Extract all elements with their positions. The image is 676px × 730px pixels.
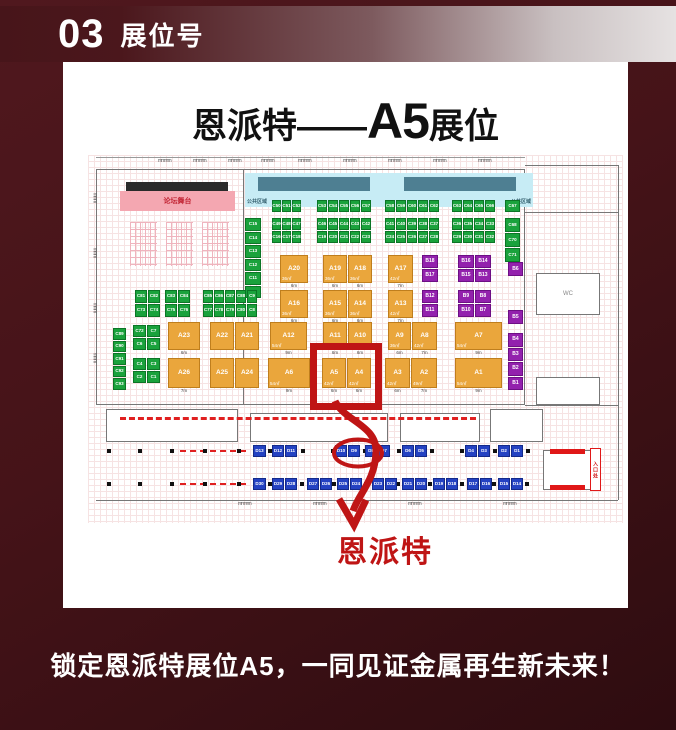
booth-C49: C49 bbox=[272, 218, 281, 230]
wall-post-marker bbox=[492, 482, 496, 486]
booth-C14: C14 bbox=[245, 232, 261, 245]
wall-post-marker bbox=[107, 482, 111, 486]
booth-B18: B18 bbox=[422, 255, 438, 268]
booth-C41: C41 bbox=[385, 218, 395, 230]
booth-C74: C74 bbox=[148, 304, 160, 317]
booth-D19: D19 bbox=[433, 478, 445, 490]
booth-C36: C36 bbox=[452, 218, 462, 230]
booth-C47: C47 bbox=[292, 218, 301, 230]
booth-C63: C63 bbox=[452, 200, 462, 212]
door-marks: mmmm bbox=[433, 159, 446, 164]
booth-B17: B17 bbox=[422, 269, 438, 282]
booth-D6: D6 bbox=[402, 445, 414, 457]
booth-C86: C86 bbox=[214, 290, 224, 303]
booth-C53: C53 bbox=[317, 200, 327, 212]
booth-C39: C39 bbox=[407, 218, 417, 230]
booth-D23: D23 bbox=[372, 478, 384, 490]
lower-wall-right bbox=[525, 405, 618, 406]
booth-D21: D21 bbox=[402, 478, 414, 490]
floorplan: WC 入口处 论坛舞台 公共区域 公共区域 bbox=[88, 155, 623, 523]
booth-C62: C62 bbox=[429, 200, 439, 212]
title-booth-number: A5 bbox=[367, 93, 429, 149]
booth-C2: C2 bbox=[133, 371, 146, 383]
booth-C91: C91 bbox=[113, 353, 126, 365]
booth-A21: A21 bbox=[235, 322, 259, 350]
door-marks: mmm bbox=[91, 353, 96, 363]
booth-C61: C61 bbox=[418, 200, 428, 212]
booth-D25: D25 bbox=[337, 478, 349, 490]
wall-post-marker bbox=[428, 482, 432, 486]
booth-C87: C87 bbox=[225, 290, 235, 303]
booth-C28: C28 bbox=[429, 231, 439, 243]
booth-B4: B4 bbox=[508, 333, 523, 347]
seating-block-center bbox=[166, 222, 193, 266]
booth-C12: C12 bbox=[245, 259, 261, 272]
booth-C83: C83 bbox=[165, 290, 177, 303]
wall-post-marker bbox=[170, 449, 174, 453]
booth-D22: D22 bbox=[385, 478, 397, 490]
entrance-bar-top bbox=[550, 449, 585, 454]
door-marks: mmmm bbox=[503, 502, 516, 507]
outer-wall-right bbox=[618, 165, 619, 500]
booth-C30: C30 bbox=[463, 231, 473, 243]
wall-post-marker bbox=[301, 449, 305, 453]
outer-wall-bottom bbox=[96, 500, 618, 501]
booth-C67: C67 bbox=[505, 200, 520, 212]
booth-B5: B5 bbox=[508, 310, 523, 324]
booth-C38: C38 bbox=[418, 218, 428, 230]
booth-A8: A842㎡7m bbox=[412, 322, 437, 350]
booth-B3: B3 bbox=[508, 348, 523, 362]
booth-D4: D4 bbox=[465, 445, 477, 457]
booth-D2: D2 bbox=[498, 445, 510, 457]
booth-D26: D26 bbox=[320, 478, 332, 490]
booth-B13: B13 bbox=[475, 269, 491, 282]
booth-C44: C44 bbox=[339, 218, 349, 230]
booth-D1: D1 bbox=[511, 445, 523, 457]
forum-stage: 论坛舞台 bbox=[120, 191, 235, 211]
booth-D7: D7 bbox=[378, 445, 390, 457]
booth-A17: A1742㎡7m bbox=[388, 255, 413, 283]
booth-C50: C50 bbox=[272, 200, 281, 212]
wall-post-marker bbox=[493, 449, 497, 453]
a5-highlight-box bbox=[310, 343, 382, 410]
booth-C88: C88 bbox=[236, 290, 246, 303]
card-title: 恩派特——A5展位 bbox=[63, 92, 628, 150]
wall-post-marker bbox=[203, 482, 207, 486]
red-dashed-line bbox=[120, 417, 476, 420]
wall-post-marker bbox=[237, 449, 241, 453]
booth-D20: D20 bbox=[415, 478, 427, 490]
booth-D14: D14 bbox=[511, 478, 523, 490]
booth-C43: C43 bbox=[350, 218, 360, 230]
booth-C52: C52 bbox=[292, 200, 301, 212]
annotation-company-label: 恩派特 bbox=[300, 527, 470, 571]
booth-C13: C13 bbox=[245, 245, 261, 258]
booth-C11: C11 bbox=[245, 272, 261, 285]
booth-D5: D5 bbox=[415, 445, 427, 457]
booth-C31: C31 bbox=[474, 231, 484, 243]
booth-C29: C29 bbox=[452, 231, 462, 243]
right-zone-wall-mid bbox=[525, 212, 618, 213]
booth-C78: C78 bbox=[214, 304, 224, 317]
wall-post-marker bbox=[237, 482, 241, 486]
booth-C34: C34 bbox=[474, 218, 484, 230]
entrance-label: 入口处 bbox=[592, 461, 599, 479]
wc-room: WC bbox=[536, 273, 600, 315]
booth-C92: C92 bbox=[113, 366, 126, 378]
wall-post-marker bbox=[526, 449, 530, 453]
booth-C40: C40 bbox=[396, 218, 406, 230]
bottom-caption: 锁定恩派特展位A5，一同见证金属再生新未来！ bbox=[0, 646, 676, 683]
booth-C48: C48 bbox=[282, 218, 291, 230]
booth-A3: A342㎡6m bbox=[385, 358, 410, 388]
lower-room-4 bbox=[490, 409, 543, 442]
booth-C79: C79 bbox=[225, 304, 235, 317]
booth-C85: C85 bbox=[203, 290, 213, 303]
booth-B9: B9 bbox=[458, 290, 474, 303]
booth-B7: B7 bbox=[475, 304, 491, 317]
booth-D9: D9 bbox=[348, 445, 360, 457]
booth-C6: C6 bbox=[133, 338, 146, 350]
header-band: 03 展位号 bbox=[0, 6, 676, 62]
booth-D17: D17 bbox=[467, 478, 479, 490]
door-marks: mmmm bbox=[478, 159, 491, 164]
booth-C35: C35 bbox=[463, 218, 473, 230]
booth-D18: D18 bbox=[446, 478, 458, 490]
booth-D8: D8 bbox=[365, 445, 377, 457]
booth-A7: A754㎡9m bbox=[455, 322, 502, 350]
booth-C82: C82 bbox=[148, 290, 160, 303]
booth-A6: A654㎡9m bbox=[268, 358, 310, 388]
booth-C58: C58 bbox=[385, 200, 395, 212]
door-marks: mmmm bbox=[298, 159, 311, 164]
booth-A22: A22 bbox=[210, 322, 234, 350]
booth-C57: C57 bbox=[361, 200, 371, 212]
booth-C54: C54 bbox=[328, 200, 338, 212]
booth-B11: B11 bbox=[422, 304, 438, 317]
public-area-bar-right bbox=[404, 177, 516, 191]
wall-post-marker bbox=[300, 482, 304, 486]
content-card: 恩派特——A5展位 WC 入口处 论坛舞台 bbox=[63, 62, 628, 608]
seating-block-left bbox=[130, 222, 157, 266]
booth-A24: A24 bbox=[235, 358, 259, 388]
arrow-head bbox=[339, 499, 366, 525]
booth-C37: C37 bbox=[429, 218, 439, 230]
section-number: 03 bbox=[58, 14, 105, 54]
wall-post-marker bbox=[332, 482, 336, 486]
booth-B15: B15 bbox=[458, 269, 474, 282]
booth-C75: C75 bbox=[165, 304, 177, 317]
wc-label: WC bbox=[563, 291, 573, 297]
booth-C4: C4 bbox=[133, 358, 146, 370]
title-suffix: 展位 bbox=[429, 107, 499, 146]
booth-C84: C84 bbox=[178, 290, 190, 303]
booth-C25: C25 bbox=[396, 231, 406, 243]
seating-block-right bbox=[202, 222, 229, 266]
booth-D30: D30 bbox=[253, 478, 266, 490]
door-marks: mmmm bbox=[228, 159, 241, 164]
booth-A14: A1436㎡6m bbox=[348, 290, 372, 318]
booth-C5: C5 bbox=[147, 338, 160, 350]
booth-C22: C22 bbox=[350, 231, 360, 243]
booth-A19: A1936㎡6m bbox=[323, 255, 347, 283]
booth-C60: C60 bbox=[407, 200, 417, 212]
booth-D11: D11 bbox=[285, 445, 297, 457]
booth-A9: A936㎡6m bbox=[388, 322, 411, 350]
booth-C1: C1 bbox=[147, 371, 160, 383]
entrance-bar-bottom bbox=[550, 485, 585, 490]
door-marks: mmm bbox=[91, 248, 96, 258]
booth-C90: C90 bbox=[113, 341, 126, 353]
wall-post-marker bbox=[170, 482, 174, 486]
booth-A20: A2036㎡6m bbox=[280, 255, 308, 283]
booth-B12: B12 bbox=[422, 290, 438, 303]
booth-C15: C15 bbox=[245, 218, 261, 231]
booth-C3: C3 bbox=[147, 358, 160, 370]
right-room-2 bbox=[536, 377, 600, 405]
wall-post-marker bbox=[364, 482, 368, 486]
booth-C80: C80 bbox=[236, 304, 246, 317]
booth-D15: D15 bbox=[498, 478, 510, 490]
booth-C9: C9 bbox=[247, 290, 257, 303]
booth-C33: C33 bbox=[485, 218, 495, 230]
booth-A15: A1536㎡6m bbox=[323, 290, 347, 318]
booth-B14: B14 bbox=[475, 255, 491, 268]
booth-C46: C46 bbox=[317, 218, 327, 230]
booth-B1: B1 bbox=[508, 377, 523, 391]
stage-label: 论坛舞台 bbox=[164, 196, 192, 206]
door-marks: mmmm bbox=[193, 159, 206, 164]
booth-B8: B8 bbox=[475, 290, 491, 303]
booth-C73: C73 bbox=[135, 304, 147, 317]
booth-A2: A249㎡7m bbox=[411, 358, 437, 388]
booth-C18: C18 bbox=[292, 231, 301, 243]
booth-C70: C70 bbox=[505, 233, 520, 247]
booth-B2: B2 bbox=[508, 362, 523, 376]
door-marks: mmmm bbox=[158, 159, 171, 164]
booth-C64: C64 bbox=[463, 200, 473, 212]
door-marks: mmmm bbox=[343, 159, 356, 164]
title-prefix: 恩派特—— bbox=[192, 107, 367, 146]
wall-post-marker bbox=[460, 449, 464, 453]
booth-C71: C71 bbox=[505, 248, 520, 262]
booth-A12: A1254㎡9m bbox=[270, 322, 307, 350]
booth-A25: A25 bbox=[210, 358, 234, 388]
booth-D13: D13 bbox=[253, 445, 266, 457]
door-marks: mmmm bbox=[313, 502, 326, 507]
booth-C45: C45 bbox=[328, 218, 338, 230]
booth-D24: D24 bbox=[350, 478, 362, 490]
door-marks: mmm bbox=[91, 303, 96, 313]
booth-D16: D16 bbox=[480, 478, 492, 490]
booth-C8: C8 bbox=[247, 304, 257, 317]
booth-D29: D29 bbox=[272, 478, 284, 490]
public-area-bar-left bbox=[258, 177, 370, 191]
booth-A16: A1636㎡6m bbox=[280, 290, 308, 318]
booth-C77: C77 bbox=[203, 304, 213, 317]
door-marks: mmmm bbox=[408, 502, 421, 507]
wall-post-marker bbox=[525, 482, 529, 486]
poster: { "header":{"number":"03","title":"展位号"}… bbox=[0, 0, 676, 730]
wall-post-marker bbox=[397, 449, 401, 453]
booth-D10: D10 bbox=[335, 445, 347, 457]
booth-C93: C93 bbox=[113, 378, 126, 390]
public-area-label-left: 公共区域 bbox=[247, 198, 267, 205]
booth-C89: C89 bbox=[113, 328, 126, 340]
booth-C59: C59 bbox=[396, 200, 406, 212]
booth-C20: C20 bbox=[328, 231, 338, 243]
entrance-sign: 入口处 bbox=[590, 448, 601, 491]
booth-A26: A267m bbox=[168, 358, 200, 388]
wall-post-marker bbox=[107, 449, 111, 453]
booth-C51: C51 bbox=[282, 200, 291, 212]
booth-C17: C17 bbox=[282, 231, 291, 243]
booth-C23: C23 bbox=[361, 231, 371, 243]
door-marks: mmm bbox=[91, 193, 96, 203]
booth-A18: A1836㎡6m bbox=[348, 255, 372, 283]
booth-C24: C24 bbox=[385, 231, 395, 243]
door-marks: mmmm bbox=[261, 159, 274, 164]
booth-A1: A154㎡9m bbox=[455, 358, 502, 388]
booth-D12: D12 bbox=[272, 445, 284, 457]
lower-room-1 bbox=[106, 409, 238, 442]
wall-post-marker bbox=[138, 482, 142, 486]
booth-C42: C42 bbox=[361, 218, 371, 230]
booth-C21: C21 bbox=[339, 231, 349, 243]
booth-C68: C68 bbox=[505, 218, 520, 232]
door-marks: mmmm bbox=[388, 159, 401, 164]
door-marks: mmmm bbox=[238, 502, 251, 507]
section-title: 展位号 bbox=[121, 16, 205, 53]
booth-B10: B10 bbox=[458, 304, 474, 317]
booth-C76: C76 bbox=[178, 304, 190, 317]
booth-C32: C32 bbox=[485, 231, 495, 243]
booth-B16: B16 bbox=[458, 255, 474, 268]
booth-C72: C72 bbox=[133, 325, 146, 337]
wall-post-marker bbox=[430, 449, 434, 453]
booth-C26: C26 bbox=[407, 231, 417, 243]
wall-post-marker bbox=[203, 449, 207, 453]
booth-C65: C65 bbox=[474, 200, 484, 212]
booth-C7: C7 bbox=[147, 325, 160, 337]
wall-post-marker bbox=[460, 482, 464, 486]
right-zone-wall-top bbox=[525, 165, 618, 166]
booth-C66: C66 bbox=[485, 200, 495, 212]
booth-C81: C81 bbox=[135, 290, 147, 303]
booth-D27: D27 bbox=[307, 478, 319, 490]
booth-D28: D28 bbox=[285, 478, 297, 490]
wall-post-marker bbox=[138, 449, 142, 453]
booth-C19: C19 bbox=[317, 231, 327, 243]
booth-D3: D3 bbox=[478, 445, 490, 457]
booth-C55: C55 bbox=[339, 200, 349, 212]
booth-A13: A1342㎡7m bbox=[388, 290, 413, 318]
booth-C56: C56 bbox=[350, 200, 360, 212]
booth-C27: C27 bbox=[418, 231, 428, 243]
booth-A23: A236m bbox=[168, 322, 200, 350]
stage-backdrop-bar bbox=[126, 182, 228, 191]
booth-B6: B6 bbox=[508, 262, 523, 276]
booth-C16: C16 bbox=[272, 231, 281, 243]
